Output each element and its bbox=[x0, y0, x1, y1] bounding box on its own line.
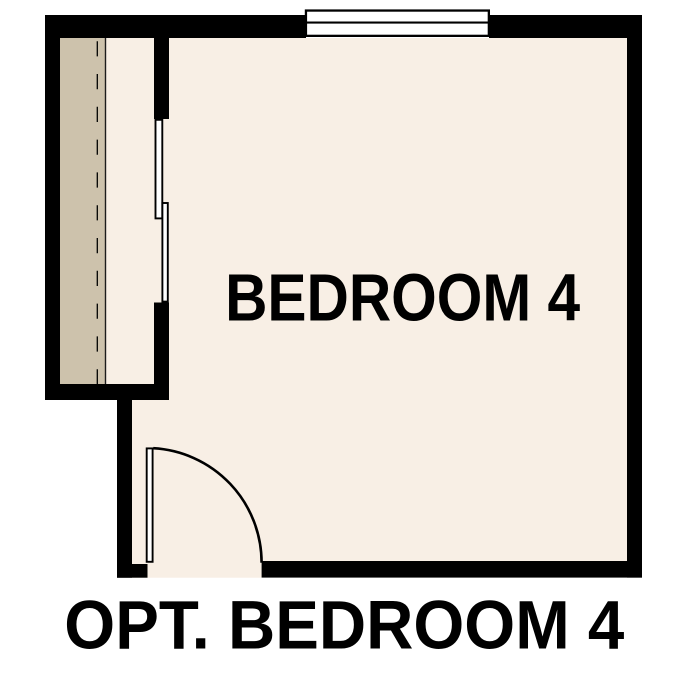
svg-text:BEDROOM 4: BEDROOM 4 bbox=[225, 260, 580, 335]
svg-text:OPT. BEDROOM 4: OPT. BEDROOM 4 bbox=[64, 587, 624, 664]
